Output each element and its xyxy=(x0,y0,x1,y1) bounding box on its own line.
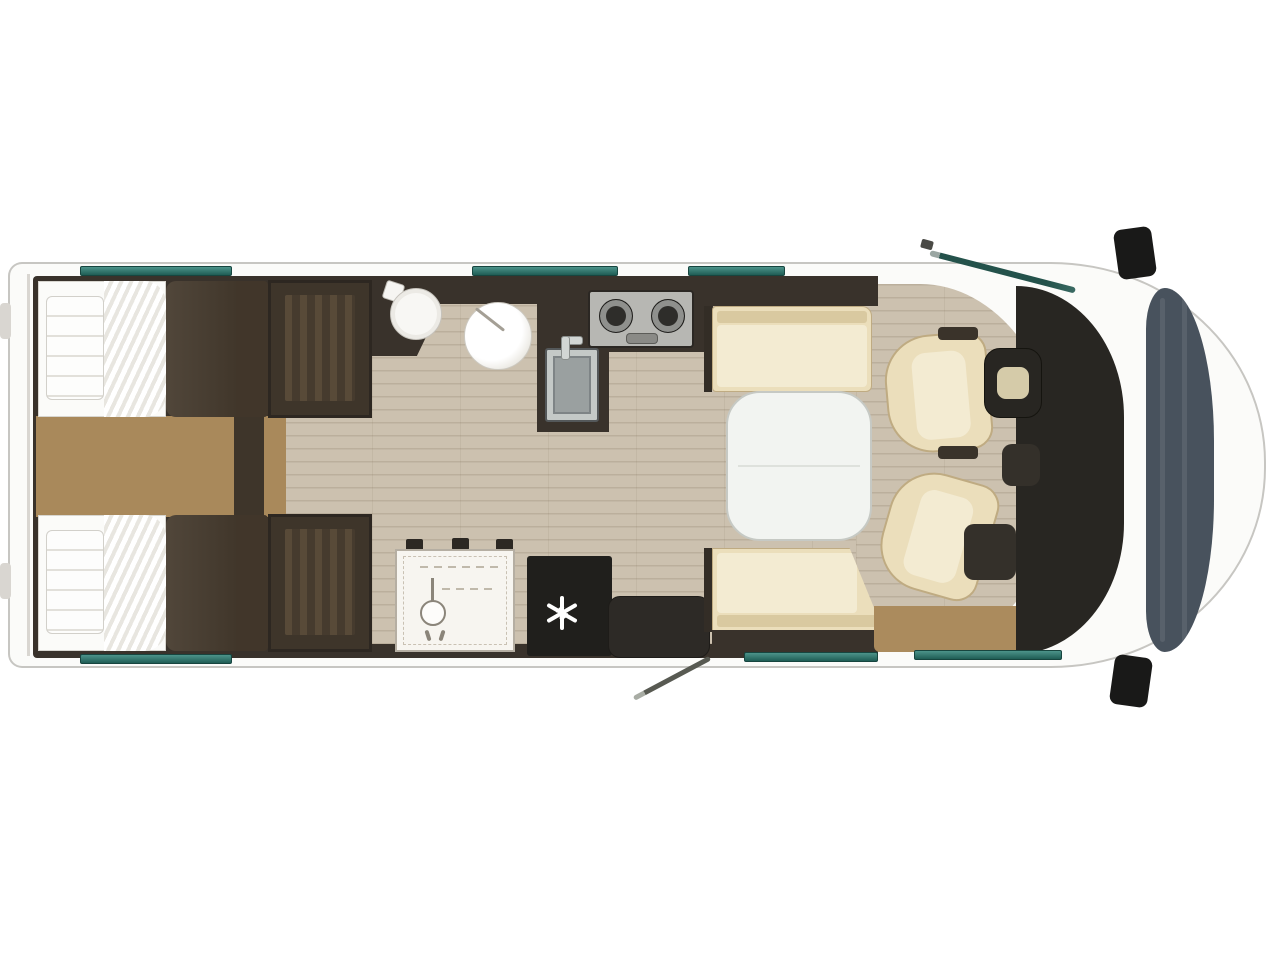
entry-step xyxy=(608,596,710,658)
window-top-kitchen xyxy=(472,266,618,276)
burner-icon xyxy=(651,299,685,333)
bathroom-wall-top xyxy=(430,276,542,304)
toilet xyxy=(390,288,442,340)
windshield-streak xyxy=(1160,298,1165,642)
bench-seat-cushion xyxy=(717,553,857,613)
twin-bed-bottom-duvet xyxy=(104,515,166,651)
rear-bumper-cap-top xyxy=(0,303,11,339)
windshield-streak xyxy=(1182,298,1187,642)
twin-bed-top-base xyxy=(166,281,268,417)
shower-head-icon xyxy=(420,600,446,626)
window-bottom-cab-door xyxy=(914,650,1062,660)
hanging-clothes-icon xyxy=(285,529,355,635)
bedroom-carpet xyxy=(36,416,234,517)
wardrobe-top xyxy=(268,280,372,418)
dinette-side-panel xyxy=(704,306,712,392)
steering-wheel-hub xyxy=(997,367,1029,399)
dinette-table xyxy=(726,391,872,541)
bench-seat-cushion xyxy=(717,325,867,387)
twin-bed-bottom-pillow xyxy=(46,530,104,634)
bench-backrest xyxy=(717,311,867,323)
hob-knobs xyxy=(627,334,657,343)
shower-door-dashed-line xyxy=(403,556,507,645)
hanging-clothes-icon xyxy=(285,295,355,401)
shower-rail-dashes xyxy=(442,588,494,590)
kitchen-sink xyxy=(545,348,599,422)
cab-door-handle xyxy=(920,239,934,251)
rear-bumper-cap-bottom xyxy=(0,563,11,599)
steering-wheel xyxy=(984,348,1042,418)
driver-armrest xyxy=(938,446,978,459)
twin-bed-top-pillow xyxy=(46,296,104,400)
snowflake-icon xyxy=(545,596,579,630)
side-mirror-bottom xyxy=(1109,654,1154,709)
twin-bed-top-duvet xyxy=(104,281,166,417)
table-seam xyxy=(738,465,860,467)
driver-swivel-seat xyxy=(881,330,995,457)
passenger-seat-base xyxy=(964,524,1016,580)
dinette-side-panel xyxy=(704,548,712,632)
dinette-wall xyxy=(694,276,878,306)
window-top-dinette xyxy=(688,266,785,276)
two-burner-hob xyxy=(588,290,694,348)
shower-rail-dashes xyxy=(420,566,500,568)
burner-icon xyxy=(599,299,633,333)
floorplan-canvas xyxy=(0,0,1280,960)
seat-cushion xyxy=(911,350,972,441)
shower-tray xyxy=(395,549,515,652)
dinette-bench-rear xyxy=(712,306,872,392)
window-bottom-bedroom xyxy=(80,654,232,664)
sink-faucet-icon xyxy=(561,336,570,360)
bench-backrest xyxy=(717,615,879,627)
wardrobe-bottom xyxy=(268,514,372,652)
driver-armrest xyxy=(938,327,978,340)
rear-wall-line xyxy=(27,274,30,656)
center-console xyxy=(1002,444,1040,486)
side-mirror-top xyxy=(1113,226,1158,281)
bedroom-carpet-strip xyxy=(264,416,286,517)
washbasin xyxy=(464,302,532,370)
window-bottom-dinette xyxy=(744,652,878,662)
bedroom-step-cabinet xyxy=(234,416,264,517)
window-top-bedroom xyxy=(80,266,232,276)
twin-bed-bottom-base xyxy=(166,515,268,651)
